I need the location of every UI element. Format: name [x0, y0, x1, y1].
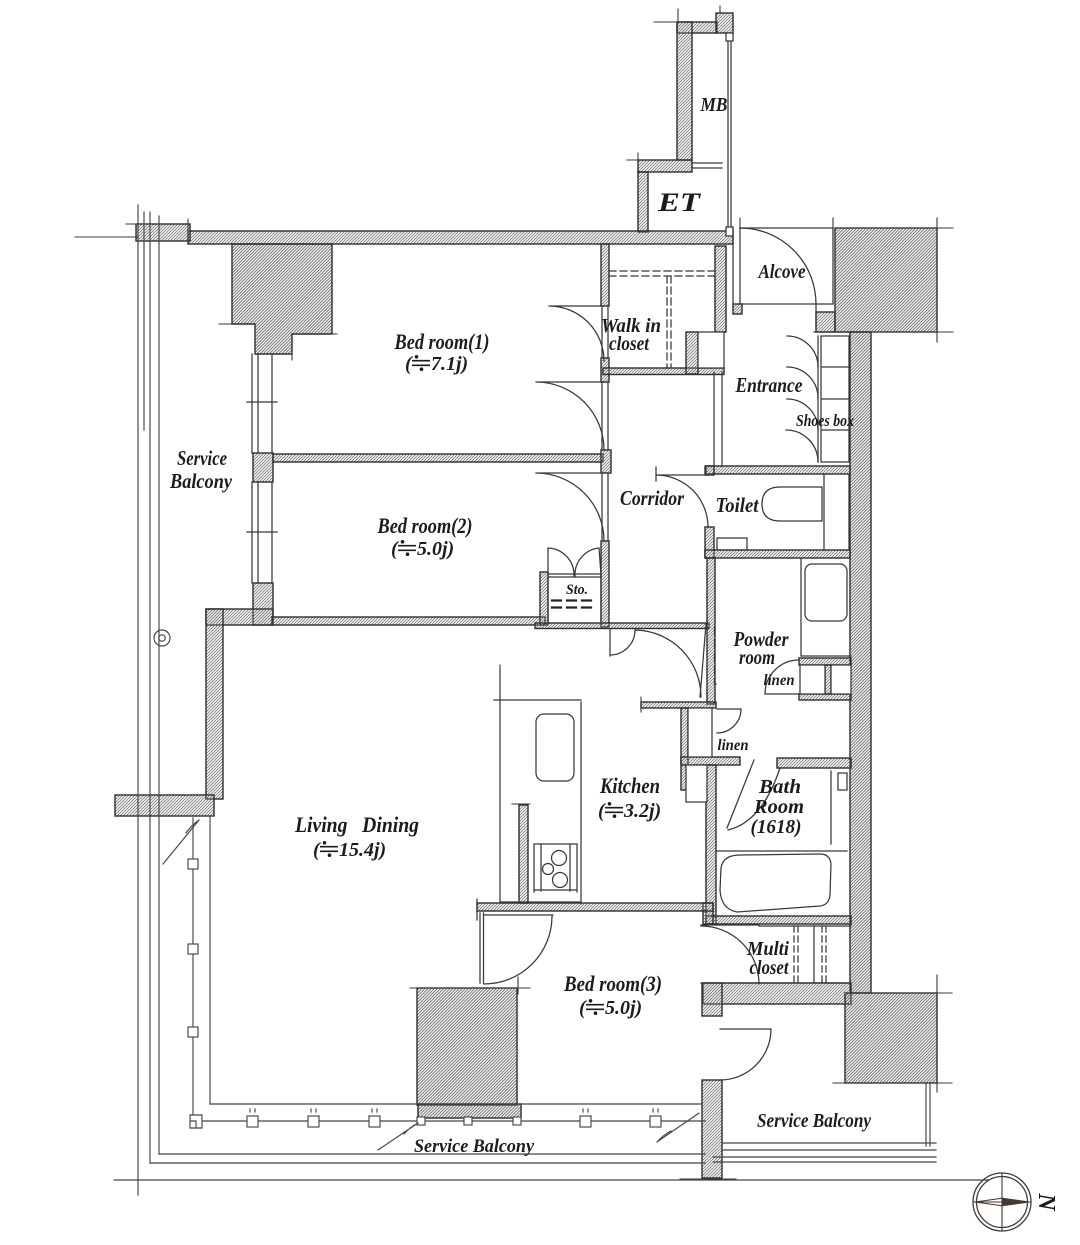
svg-text:ET: ET [657, 188, 702, 217]
svg-text:(1618): (1618) [751, 816, 802, 838]
svg-text:Balcony: Balcony [169, 469, 232, 493]
svg-text:7.1j): 7.1j) [431, 353, 468, 375]
svg-text:5.0j): 5.0j) [417, 538, 454, 560]
svg-text:Service Balcony: Service Balcony [414, 1136, 535, 1157]
svg-text:Bed room(3): Bed room(3) [563, 971, 662, 996]
svg-text:Service: Service [177, 446, 227, 470]
svg-text:Alcove: Alcove [757, 261, 806, 283]
svg-text:linen: linen [764, 672, 795, 689]
svg-text:Sto.: Sto. [566, 582, 588, 598]
svg-text:Service Balcony: Service Balcony [757, 1110, 871, 1132]
svg-text:Toilet: Toilet [716, 493, 760, 517]
svg-text:Kitchen: Kitchen [599, 773, 660, 798]
svg-text:N: N [1033, 1192, 1059, 1212]
svg-text:room: room [739, 645, 775, 669]
svg-text:linen: linen [718, 737, 749, 754]
svg-text:Room: Room [753, 796, 804, 818]
svg-text:closet: closet [609, 333, 650, 355]
svg-text:5.0j): 5.0j) [605, 997, 642, 1019]
svg-text:MB: MB [700, 94, 728, 116]
svg-text:Bath: Bath [758, 776, 801, 798]
svg-text:Shoes box: Shoes box [796, 411, 854, 430]
svg-text:Corridor: Corridor [620, 486, 685, 510]
svg-text:closet: closet [750, 957, 790, 979]
svg-text:Living Dining: Living Dining [294, 812, 419, 837]
svg-text:Entrance: Entrance [735, 373, 803, 397]
svg-text:3.2j): 3.2j) [623, 800, 661, 822]
svg-text:Bed room(2): Bed room(2) [377, 513, 473, 538]
svg-text:Bed room(1): Bed room(1) [394, 329, 490, 354]
svg-text:15.4j): 15.4j) [339, 839, 386, 861]
